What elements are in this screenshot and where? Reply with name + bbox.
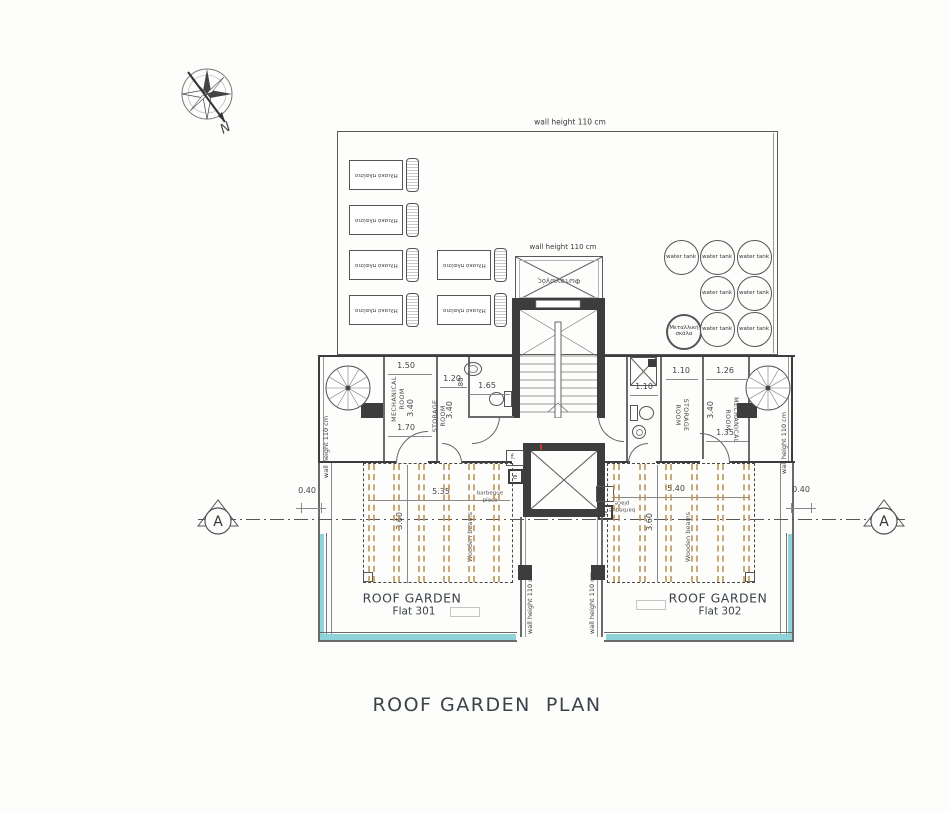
garden-right-flat: Flat 302 [699,606,742,619]
toilet-right-bowl [639,406,654,420]
dim-tick [811,503,812,513]
garden-left-legend-box [450,607,480,617]
fixture-e-left-label: e [513,473,517,481]
solar-panel-label: Ηλιακό πλαίσιο [355,217,398,223]
rooms-top-wall-left [318,355,512,357]
section-marker-left: A [196,498,240,536]
solar-boiler [494,248,507,282]
solar-panel: Ηλιακό πλαίσιο [349,205,403,235]
plan-graphic [536,301,580,308]
water-tank: water tank [700,312,735,347]
water-tank: water tank [737,240,772,275]
wooden-beam [743,464,750,582]
wooden-beam [368,464,375,582]
dim-tick [791,503,792,513]
dim-right-mech-bottom: 1.35 [716,428,734,438]
garden-right-glass-side [788,534,792,634]
door-arc-right-bath [598,416,624,442]
dim-line [657,465,658,583]
plan-graphic [555,322,561,418]
solar-panel-label: Ηλιακό πλαίσιο [443,262,486,268]
dim-line [666,379,698,380]
dim-garden-left-edge: 0.40 [298,486,316,496]
dim-line [612,497,750,498]
fixture-f-left-label: f. [511,453,515,461]
wooden-beam [639,464,646,582]
solar-panel-label: Ηλιακό πλαίσιο [355,262,398,268]
metal-ladder: Μεταλλική σκάλα [666,314,702,350]
roof-garden-plan: N wall height 110 cm wall height 110 cm … [0,0,950,813]
dim-tick [321,503,322,513]
wooden-beam [665,464,672,582]
room-label-right-mechanical: MECHANICAL ROOM [723,388,739,452]
dim-right-storage-top: 1.10 [672,366,690,376]
fixture-f-right-label: f. [601,489,605,497]
solar-panel: Ηλιακό πλαίσιο [349,250,403,280]
water-tank: water tank [700,240,735,275]
elevator-cross [531,451,597,509]
dim-left-bath-door: .80 [457,377,465,388]
garden-left-flat: Flat 301 [393,606,436,619]
dim-line [407,465,408,583]
wooden-beam [691,464,698,582]
dim-line [630,395,658,396]
shower-right-head [648,359,656,367]
pergola-right [607,463,755,583]
garden-right-bottom-line2 [604,640,794,642]
dim-left-mech-bottom: 1.70 [397,423,415,433]
plan-graphic [512,298,520,418]
wooden-beam [418,464,425,582]
door-arc-left-bath [472,416,500,444]
wooden-beam [443,464,450,582]
dim-left-bath-width: 1.65 [478,381,496,391]
wall-height-note-top: wall height 110 cm [534,118,606,127]
dim-line [706,441,748,442]
wall-height-note-right-wall: wall height 110 cm [781,412,789,474]
skylight-label: Φωταγωγός [538,277,581,285]
water-tank: water tank [737,276,772,311]
elevator-mark [540,444,542,450]
solar-panel-label: Ηλιακό πλαίσιο [443,307,486,313]
garden-left-glass-line [326,533,327,640]
dim-right-mech-top: 1.26 [716,366,734,376]
garden-left-bottom-line2 [318,640,517,642]
garden-left-inner-wall [331,463,332,635]
wall-height-note-skylight: wall height 110 cm [530,243,597,251]
wooden-beam [393,464,400,582]
solar-panel: Ηλιακό πλαίσιο [437,295,491,325]
section-marker-right: A [862,498,906,536]
wooden-beam [468,464,475,582]
section-marker-right-label: A [879,514,889,530]
upper-roof-inner-line [773,133,774,353]
wall-height-note-corridor-right: wall height 110 cm [589,572,597,634]
door-arc-right-bath2 [628,443,648,463]
dim-line [706,379,748,380]
barbeque-label-left: barbeque place [471,490,509,503]
water-tank: water tank [737,312,772,347]
staircase [512,298,605,418]
dim-left-storage-depth: 3.40 [445,401,455,419]
sink-right-basin [636,429,643,436]
room-label-left-mechanical: MECHANICAL ROOM [391,367,407,431]
pergola-left [363,463,513,583]
dim-garden-right-edge: 0.40 [792,485,810,495]
solar-boiler [406,203,419,237]
garden-left-title: ROOF GARDEN [363,591,462,606]
solar-panel: Ηλιακό πλαίσιο [437,250,491,280]
wooden-beam [493,464,500,582]
garden-right-bottom-line1 [604,632,794,633]
garden-right-title: ROOF GARDEN [669,591,768,606]
spiral-stair-left [324,364,372,412]
spiral-stair-right [744,364,792,412]
wall-mech-left [383,357,385,461]
dim-right-bath-width: 1.10 [635,382,653,392]
garden-right-legend-box [636,600,666,610]
dim-tick [301,503,302,513]
dim-garden-right-depth: 3.60 [645,513,655,531]
solar-panel: Ηλιακό πλαίσιο [349,160,403,190]
compass-north-label: N [218,120,234,138]
dim-line [388,436,432,437]
wooden-beam [613,464,620,582]
garden-left-bottom-line1 [318,632,517,633]
solar-panel-label: Ηλιακό πλαίσιο [355,172,398,178]
solar-boiler [494,293,507,327]
water-tank: water tank [700,276,735,311]
drawing-title: ROOF GARDEN PLAN [372,694,601,716]
solar-panel-label: Ηλιακό πλαίσιο [355,307,398,313]
wooden-beam [717,464,724,582]
plan-graphic [346,386,351,391]
barbeque-label-right: barbeque place [603,499,641,512]
solar-panel: Ηλιακό πλαίσιο [349,295,403,325]
sink-left-basin [468,365,478,373]
wall-height-note-corridor-left: wall height 110 cm [527,572,535,634]
plan-graphic [766,386,771,391]
solar-boiler [406,248,419,282]
door-arc-left-storage [442,443,462,463]
wall-bath-right [626,357,628,461]
garden-left-glass-side [320,534,324,634]
dim-right-mech-depth: 3.40 [706,401,716,419]
wall-storage-right [660,357,662,461]
section-line [198,519,905,520]
compass-rose-icon: N [174,60,244,140]
toilet-right-tank [630,405,638,421]
garden-right-glass-line [786,533,787,640]
water-tank: water tank [664,240,699,275]
wall-height-note-left-wall: wall height 110 cm [323,416,331,478]
plan-graphic [597,298,605,418]
section-marker-left-label: A [213,514,223,530]
dim-line [468,394,510,395]
room-label-right-storage: STORAGE ROOM [673,391,689,439]
garden-right-inner-wall [780,463,781,635]
left-outer-wall [318,355,320,463]
solar-boiler [406,158,419,192]
solar-boiler [406,293,419,327]
dim-left-mech-depth: 3.40 [406,399,416,417]
